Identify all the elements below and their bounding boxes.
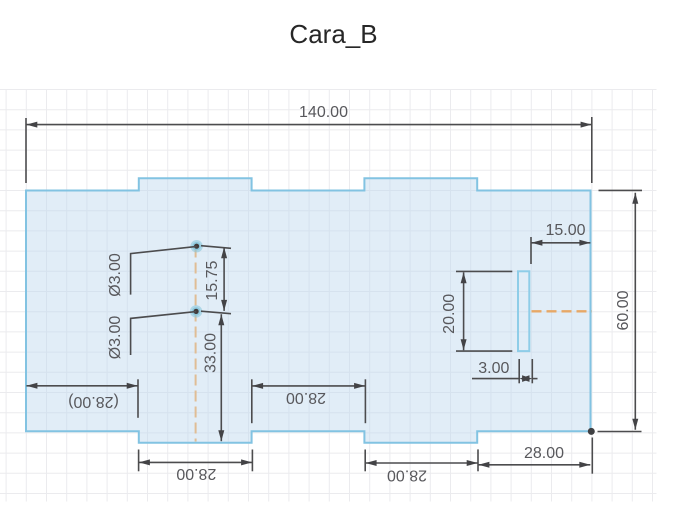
svg-text:(28.00): (28.00) <box>68 393 119 410</box>
svg-text:20.00: 20.00 <box>441 294 458 334</box>
svg-text:28.00: 28.00 <box>286 389 326 406</box>
svg-text:28.00: 28.00 <box>387 466 427 483</box>
svg-text:140.00: 140.00 <box>299 104 348 121</box>
svg-text:33.00: 33.00 <box>203 333 220 373</box>
svg-text:15.75: 15.75 <box>204 260 221 300</box>
svg-text:28.00: 28.00 <box>176 465 216 482</box>
svg-text:Cara_B: Cara_B <box>289 19 377 49</box>
svg-text:3.00: 3.00 <box>478 360 509 377</box>
svg-text:Ø3.00: Ø3.00 <box>107 253 124 297</box>
svg-text:Ø3.00: Ø3.00 <box>107 316 124 360</box>
svg-text:28.00: 28.00 <box>524 445 564 462</box>
svg-text:15.00: 15.00 <box>545 222 585 239</box>
svg-text:60.00: 60.00 <box>615 290 632 330</box>
